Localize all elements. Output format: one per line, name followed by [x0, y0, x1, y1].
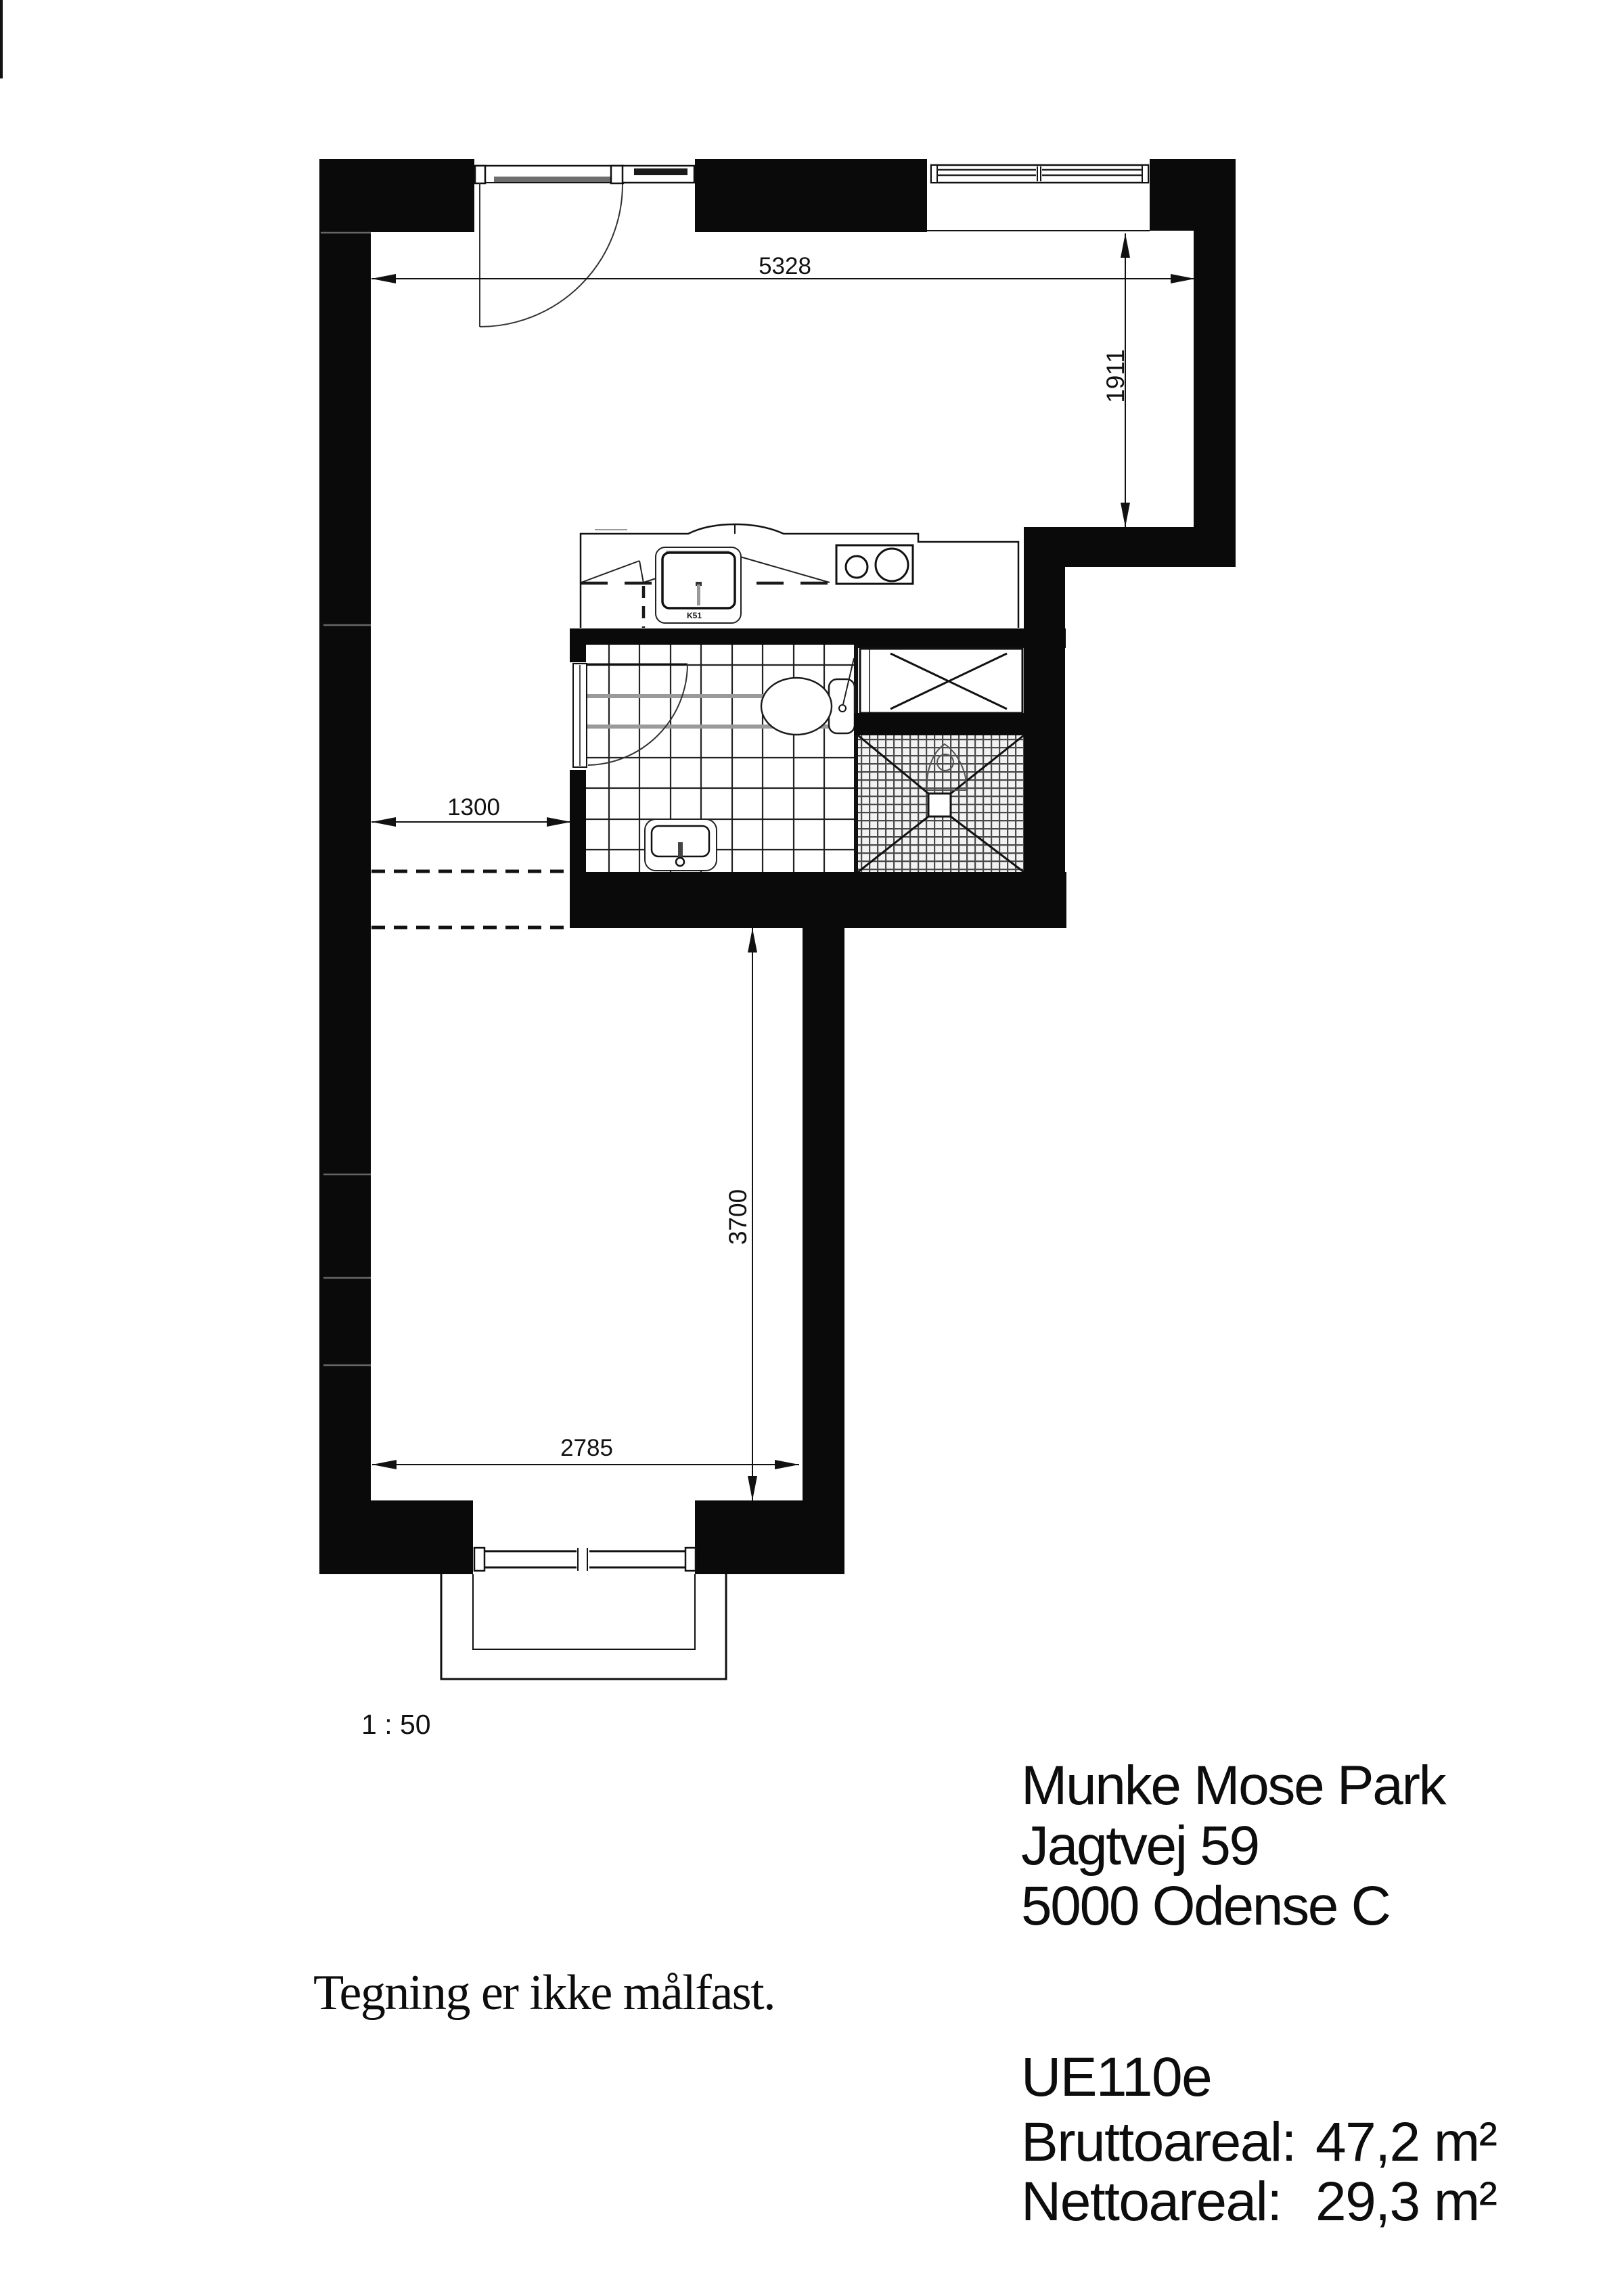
svg-text:47,2 m²: 47,2 m² — [1315, 2111, 1497, 2173]
svg-text:Munke Mose Park: Munke Mose Park — [1021, 1755, 1447, 1816]
svg-text:2785: 2785 — [560, 1435, 613, 1461]
svg-text:Nettoareal:: Nettoareal: — [1021, 2171, 1282, 2232]
svg-text:UE110e: UE110e — [1021, 2046, 1211, 2108]
svg-text:1300: 1300 — [447, 794, 500, 821]
svg-text:Tegning er ikke målfast.: Tegning er ikke målfast. — [313, 1965, 775, 2021]
svg-text:5328: 5328 — [759, 253, 811, 279]
svg-text:1911: 1911 — [1102, 349, 1129, 403]
svg-text:K51: K51 — [687, 611, 702, 620]
svg-text:Jagtvej 59: Jagtvej 59 — [1021, 1815, 1259, 1877]
svg-text:Bruttoareal:: Bruttoareal: — [1021, 2111, 1296, 2173]
svg-text:1 : 50: 1 : 50 — [361, 1709, 431, 1740]
svg-text:29,3 m²: 29,3 m² — [1315, 2171, 1497, 2232]
svg-text:5000 Odense C: 5000 Odense C — [1021, 1875, 1390, 1937]
svg-text:3700: 3700 — [724, 1189, 752, 1245]
